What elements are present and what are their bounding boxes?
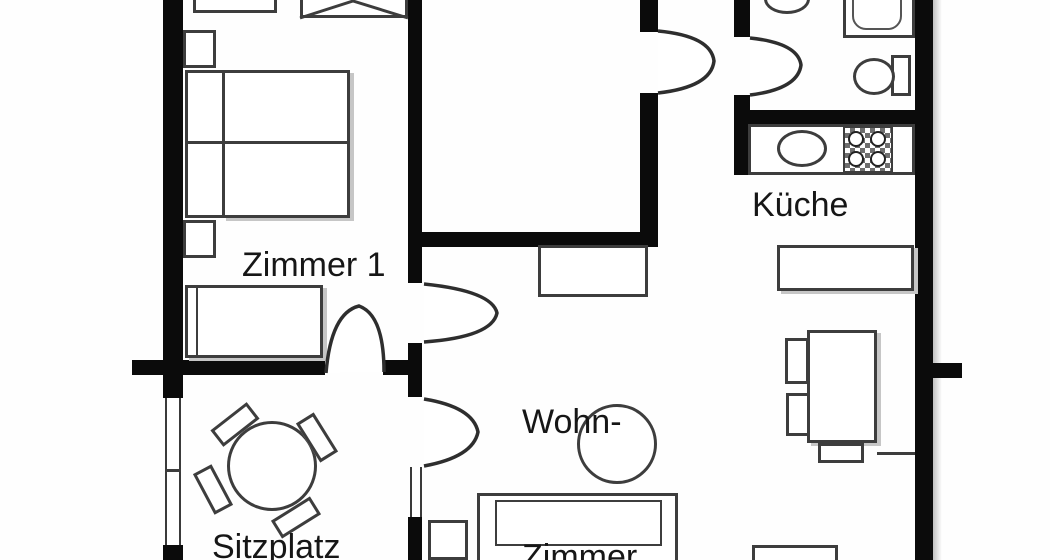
wall-sitzplatz-right-bottom xyxy=(408,517,422,560)
wall-corner-bottom-left xyxy=(163,545,183,560)
toilet-icon xyxy=(853,58,895,95)
wardrobe-icon xyxy=(300,0,408,18)
sideboard-icon xyxy=(538,245,648,297)
sink-icon xyxy=(777,130,827,167)
door-icon-centerroom xyxy=(658,31,714,93)
door-icon-zimmer1 xyxy=(424,284,497,342)
chair-icon-right-1 xyxy=(785,338,809,384)
room-label-kueche: Küche xyxy=(752,186,848,225)
armchair-icon-bottom xyxy=(752,545,838,560)
room-label-wohnzimmer-line1: Wohn- xyxy=(522,400,637,445)
room-label-zimmer1: Zimmer 1 xyxy=(242,246,386,285)
door-icon-sitzplatz-livingroom xyxy=(424,399,478,466)
floor-plan: Zimmer 1 Wohn- Zimmer Küche Sitzplatz xyxy=(0,0,1050,560)
burner-icon-3 xyxy=(848,151,864,167)
wall-zimmer1-right-lower xyxy=(408,343,422,397)
door-icon-bathroom xyxy=(750,38,801,95)
burner-icon-1 xyxy=(848,131,864,147)
wall-stub-left-and-zimmer1-bottom-wall xyxy=(132,360,325,375)
bed-pillow-top xyxy=(185,70,225,144)
dining-table-icon xyxy=(777,245,914,291)
stool-icon xyxy=(818,443,864,463)
nightstand-icon-bottom xyxy=(183,220,216,258)
bed-divider xyxy=(225,141,347,144)
dresser-inner-line xyxy=(196,288,198,355)
exterior-wall-right xyxy=(915,0,933,560)
room-label-sitzplatz: Sitzplatz xyxy=(212,528,341,560)
dresser-icon-top xyxy=(193,0,277,13)
cabinet-icon xyxy=(807,330,877,443)
wall-above-window-left xyxy=(163,375,183,398)
exterior-wall-left xyxy=(163,0,183,375)
double-bed-icon xyxy=(222,70,350,218)
nightstand-icon-top xyxy=(183,30,216,68)
washbasin-icon xyxy=(764,0,810,14)
burner-icon-4 xyxy=(870,151,886,167)
side-table-icon xyxy=(428,520,468,560)
wall-bathroom-left-upper xyxy=(734,0,750,37)
room-label-wohnzimmer-line2: Zimmer xyxy=(522,535,637,560)
bathtub-inner xyxy=(852,0,902,30)
wall-shadow-right xyxy=(933,0,942,560)
cabinet-wall-line xyxy=(877,452,915,455)
burner-icon-2 xyxy=(870,131,886,147)
dresser-icon-side xyxy=(185,285,323,358)
window-mullion xyxy=(165,469,181,472)
bed-pillow-bottom xyxy=(185,141,225,218)
wall-centerroom-right-upper xyxy=(640,0,658,32)
chair-icon-right-2 xyxy=(786,393,810,436)
wall-centerroom-right-lower xyxy=(640,93,658,247)
door-icon-zimmer1-sitzplatz xyxy=(326,306,384,373)
wall-stub-right xyxy=(933,363,962,378)
window-icon-sitzplatz-right xyxy=(410,467,422,517)
